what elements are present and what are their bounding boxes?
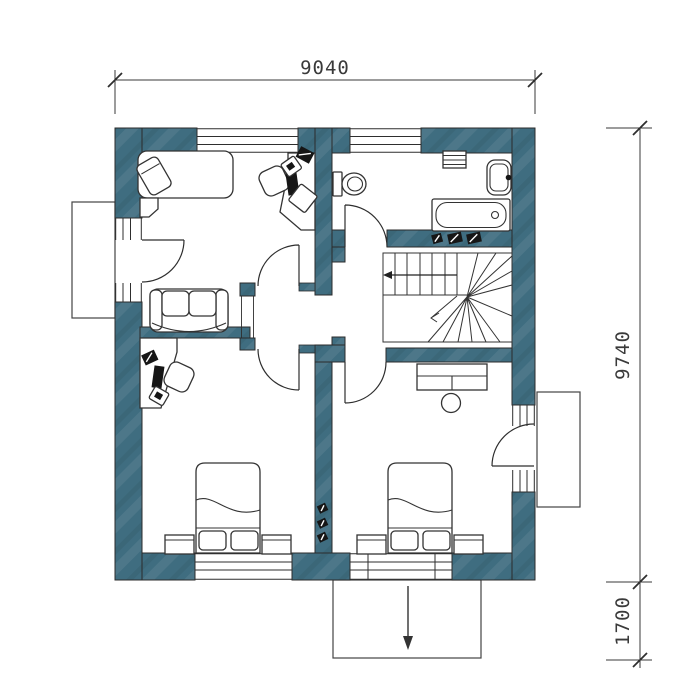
hall-door-lower (258, 349, 299, 390)
window-top-left (197, 129, 298, 153)
dim-porch-label: 1700 (612, 596, 634, 646)
switch-symbols (317, 503, 329, 543)
nightstand (262, 535, 291, 554)
balcony-right (537, 392, 580, 507)
balcony-door-left (142, 240, 184, 282)
window-left-upper (116, 218, 142, 240)
entry-arrow (403, 586, 413, 650)
nightstand (454, 535, 483, 554)
window-right-lower (513, 470, 535, 492)
dim-height-label: 9740 (612, 330, 634, 380)
radiator-symbol (443, 151, 466, 168)
staircase (383, 253, 512, 342)
bedside-table (140, 198, 158, 217)
stairs-walkline-arrow (431, 296, 457, 322)
balcony-left (72, 202, 115, 318)
dimension-right: 9740 (606, 121, 652, 589)
dimension-porch: 1700 (606, 582, 652, 668)
porch (333, 580, 481, 658)
bed-double-left (165, 463, 291, 554)
bathroom-door (345, 205, 387, 247)
nightstand (357, 535, 386, 554)
desk-bottom-left (140, 338, 196, 408)
window-left-lower (116, 283, 142, 302)
pillow (231, 531, 258, 550)
dim-width-label: 9040 (300, 57, 350, 79)
floor-plan-page: 9040 9740 1700 (0, 0, 690, 700)
dimension-top: 9040 (108, 57, 542, 114)
pillow (391, 531, 418, 550)
floor-plan-drawing: 9040 9740 1700 (0, 0, 690, 700)
sofa (150, 289, 228, 332)
bed-single (135, 151, 233, 217)
window-top-bathroom (350, 129, 421, 153)
terrace-door-bottom (350, 553, 452, 580)
bathtub-symbol (432, 199, 510, 231)
wall-vent-symbols (431, 232, 482, 245)
stool (442, 394, 461, 413)
desk-top-right (257, 146, 318, 230)
sink-symbol (487, 160, 511, 195)
hall-door-upper (258, 245, 299, 286)
bedroom-right-door (345, 362, 386, 403)
toilet-symbol (333, 172, 366, 196)
dresser (417, 364, 487, 390)
window-bottom-left (195, 554, 292, 580)
balcony-door-right (492, 424, 534, 466)
nightstand (165, 535, 194, 554)
pillow (423, 531, 450, 550)
window-right-upper (513, 405, 535, 426)
bed-double-right (357, 463, 483, 554)
pillow (199, 531, 226, 550)
